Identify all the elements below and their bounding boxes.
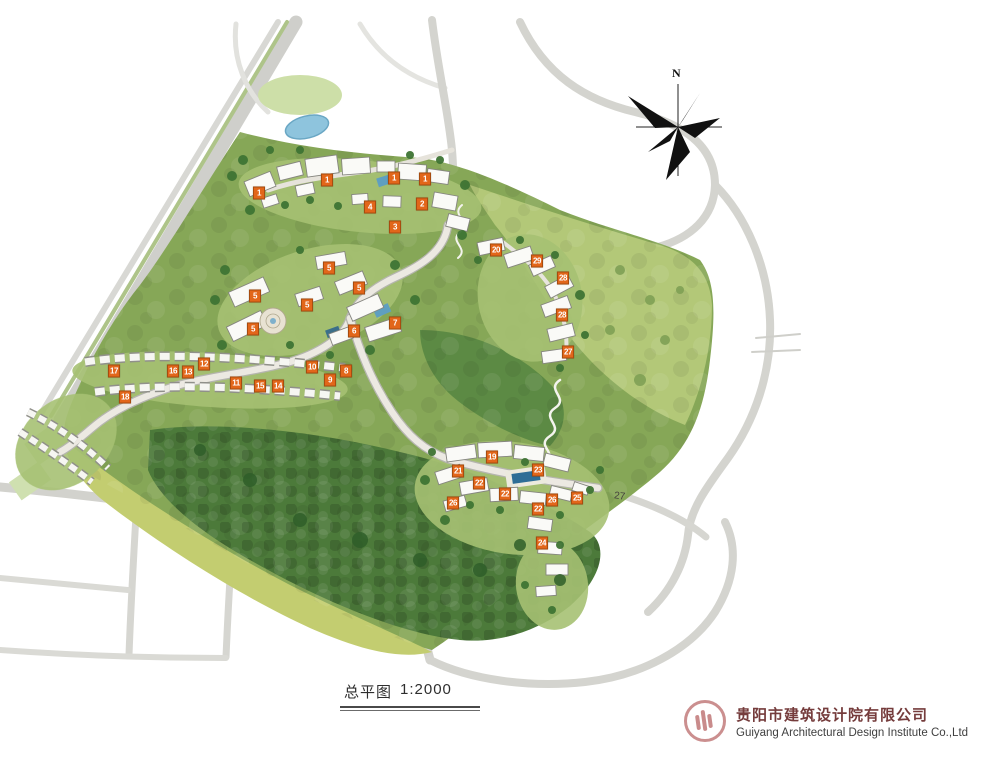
- plot-marker: 1: [321, 174, 333, 187]
- plot-marker: 28: [556, 309, 568, 322]
- plot-marker: 18: [119, 391, 131, 404]
- caption-scale: 1:2000: [400, 681, 452, 702]
- plot-marker: 9: [324, 374, 336, 387]
- marker-layer: 1111423555556717181613121115141098202928…: [0, 0, 1000, 758]
- plot-marker: 21: [452, 465, 464, 478]
- plot-marker: 22: [499, 488, 511, 501]
- plot-marker: 3: [389, 221, 401, 234]
- caption-underline-thin: [340, 710, 480, 711]
- plot-marker: 22: [473, 477, 485, 490]
- plot-marker: 10: [306, 361, 318, 374]
- plot-marker: 11: [230, 377, 242, 390]
- plot-marker: 4: [364, 201, 376, 214]
- plot-marker: 5: [353, 282, 365, 295]
- plot-marker: 5: [249, 290, 261, 303]
- plot-marker: 5: [247, 323, 259, 336]
- company-logo-icon: [684, 700, 726, 742]
- plot-marker: 12: [198, 358, 210, 371]
- company-name-cn: 贵阳市建筑设计院有限公司: [736, 704, 968, 725]
- plot-marker: 5: [301, 299, 313, 312]
- plot-marker: 1: [388, 172, 400, 185]
- caption-underline: [340, 706, 480, 708]
- plot-marker: 17: [108, 365, 120, 378]
- plot-marker: 24: [536, 537, 548, 550]
- plot-marker: 8: [340, 365, 352, 378]
- plot-marker: 25: [571, 492, 583, 505]
- plot-marker: 29: [531, 255, 543, 268]
- plot-marker: 26: [546, 494, 558, 507]
- plot-marker: 2: [416, 198, 428, 211]
- plot-marker: 27: [562, 346, 574, 359]
- plot-marker: 22: [532, 503, 544, 516]
- plot-marker: 7: [389, 317, 401, 330]
- company-signature: 贵阳市建筑设计院有限公司 Guiyang Architectural Desig…: [684, 700, 968, 742]
- plot-marker: 1: [419, 173, 431, 186]
- plot-marker: 6: [348, 325, 360, 338]
- caption-title: 总平图: [344, 681, 392, 702]
- company-name-en: Guiyang Architectural Design Institute C…: [736, 727, 968, 739]
- plot-marker: 5: [323, 262, 335, 275]
- plot-marker: 14: [272, 380, 284, 393]
- site-plan-image: N 27 11114235555567171816131211151410982…: [0, 0, 1000, 758]
- plot-marker: 13: [182, 366, 194, 379]
- plot-marker: 26: [447, 497, 459, 510]
- drawing-caption: 总平图 1:2000: [340, 681, 480, 711]
- plot-marker: 15: [254, 380, 266, 393]
- plot-marker: 1: [253, 187, 265, 200]
- plot-marker: 23: [532, 464, 544, 477]
- plot-marker: 20: [490, 244, 502, 257]
- plot-marker: 28: [557, 272, 569, 285]
- plot-marker: 16: [167, 365, 179, 378]
- plot-marker: 19: [486, 451, 498, 464]
